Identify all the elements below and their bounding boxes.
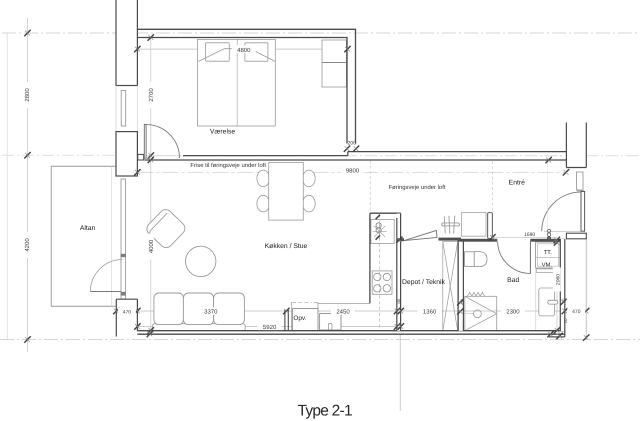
svg-text:Type 2-1: Type 2-1 (298, 403, 352, 420)
svg-text:VM.: VM. (542, 263, 553, 269)
svg-text:5920: 5920 (263, 324, 277, 331)
svg-text:470: 470 (572, 309, 581, 315)
svg-text:Entré: Entré (509, 179, 525, 186)
svg-text:200: 200 (348, 141, 357, 147)
svg-text:470: 470 (123, 309, 132, 315)
svg-text:Værelse: Værelse (210, 129, 236, 136)
svg-text:9800: 9800 (346, 168, 360, 175)
svg-text:Føringsveje under loft: Føringsveje under loft (389, 184, 446, 191)
svg-text:Opv.: Opv. (293, 315, 306, 322)
svg-text:60: 60 (562, 298, 567, 303)
svg-text:4800: 4800 (237, 47, 251, 54)
svg-text:4200: 4200 (24, 238, 31, 252)
svg-text:Bad: Bad (507, 277, 519, 284)
svg-text:1360: 1360 (423, 309, 437, 316)
svg-text:2700: 2700 (148, 88, 155, 102)
svg-text:2300: 2300 (506, 309, 520, 316)
svg-text:20: 20 (563, 318, 568, 323)
svg-text:Altan: Altan (80, 225, 96, 232)
svg-text:3370: 3370 (204, 309, 218, 316)
svg-text:80: 80 (396, 298, 401, 303)
svg-text:Frise til føringsveje under lo: Frise til føringsveje under loft (190, 162, 266, 169)
svg-text:2800: 2800 (24, 88, 31, 102)
svg-text:2060: 2060 (555, 274, 561, 285)
svg-text:Depot / Teknik: Depot / Teknik (402, 279, 446, 286)
svg-text:4000: 4000 (148, 239, 155, 253)
svg-text:Køkken / Stue: Køkken / Stue (265, 243, 308, 250)
svg-text:TT.: TT. (544, 250, 552, 256)
svg-text:2450: 2450 (336, 309, 350, 316)
svg-text:60: 60 (459, 298, 464, 303)
svg-text:1690: 1690 (524, 232, 535, 238)
